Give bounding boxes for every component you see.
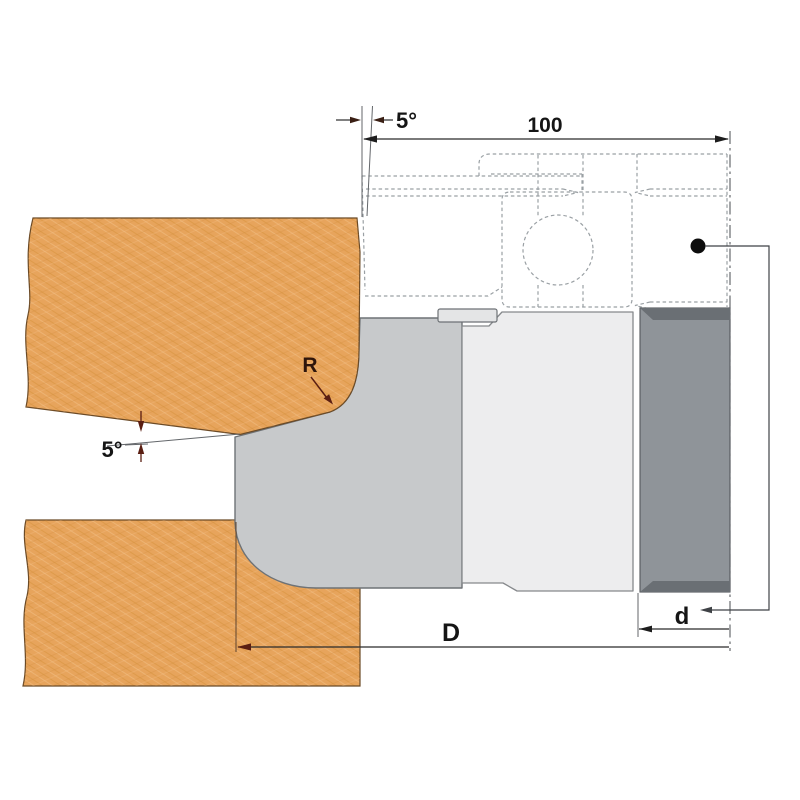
hidden-right-edge [637, 154, 727, 307]
bore-diameter-label: d [675, 603, 690, 630]
upper-workpiece [26, 218, 360, 435]
hidden-hub-bands [366, 189, 727, 309]
dim-width-extension-lines [362, 106, 373, 217]
cutter-body-face [462, 312, 633, 591]
outer-diameter-label: D [442, 619, 460, 647]
dim-cutting-width: 100 [362, 106, 729, 217]
cutter-head-drawing: 100 5° 5° R d D [0, 0, 800, 800]
knife-clamp-tab [438, 309, 497, 322]
clamp-screw-bore-circle [523, 215, 593, 285]
dim-shear-angle: 5° [336, 108, 417, 133]
dim-width-arrow-right [715, 135, 729, 142]
technical-drawing-canvas: 100 5° 5° R d D [0, 0, 800, 800]
shear-angle-label: 5° [396, 108, 417, 133]
hidden-top-tab [479, 154, 727, 192]
hub-top-band [640, 308, 730, 320]
profile-radius-label: R [302, 354, 317, 377]
clearance-angle-label: 5° [101, 437, 122, 462]
clearance-reference-line [107, 434, 240, 446]
hidden-body-left [362, 176, 582, 296]
cutter-hub [640, 308, 730, 592]
hidden-screw-sides [538, 155, 583, 307]
hub-bottom-band [640, 581, 730, 592]
bore-center-dot [691, 239, 706, 254]
cutting-width-label: 100 [527, 114, 562, 137]
dim-width-arrow-left [363, 135, 377, 142]
hidden-body-outline [362, 154, 727, 309]
hidden-knife-slot [502, 192, 632, 307]
dim-bore-d: d [638, 593, 729, 637]
